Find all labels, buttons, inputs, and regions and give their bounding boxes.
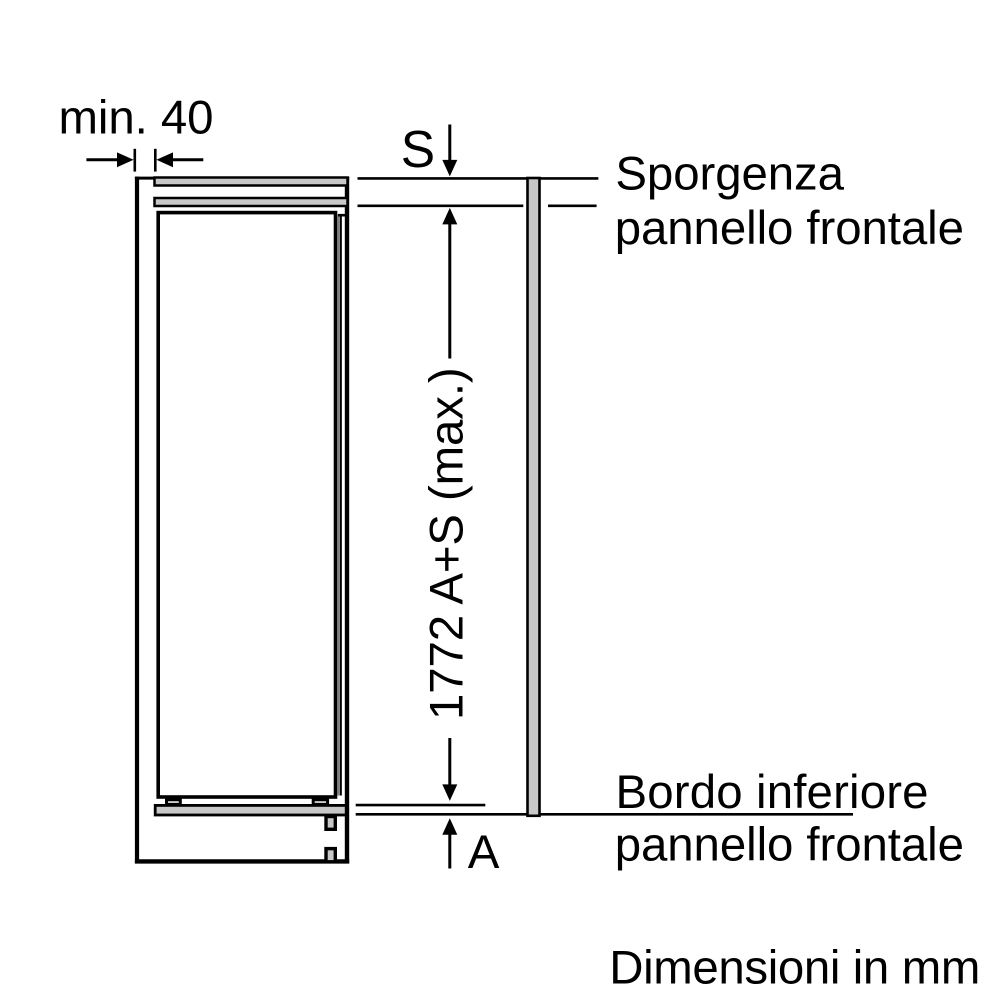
- svg-text:S: S: [401, 120, 435, 178]
- svg-text:pannello frontale: pannello frontale: [615, 202, 964, 255]
- svg-text:Dimensioni in mm: Dimensioni in mm: [609, 942, 980, 995]
- svg-text:A: A: [468, 826, 500, 879]
- svg-text:pannello frontale: pannello frontale: [615, 819, 964, 872]
- svg-text:Bordo inferiore: Bordo inferiore: [616, 766, 929, 819]
- svg-text:Sporgenza: Sporgenza: [615, 148, 844, 201]
- svg-text:1772 A+S (max.): 1772 A+S (max.): [421, 367, 474, 720]
- svg-text:min. 40: min. 40: [59, 92, 214, 145]
